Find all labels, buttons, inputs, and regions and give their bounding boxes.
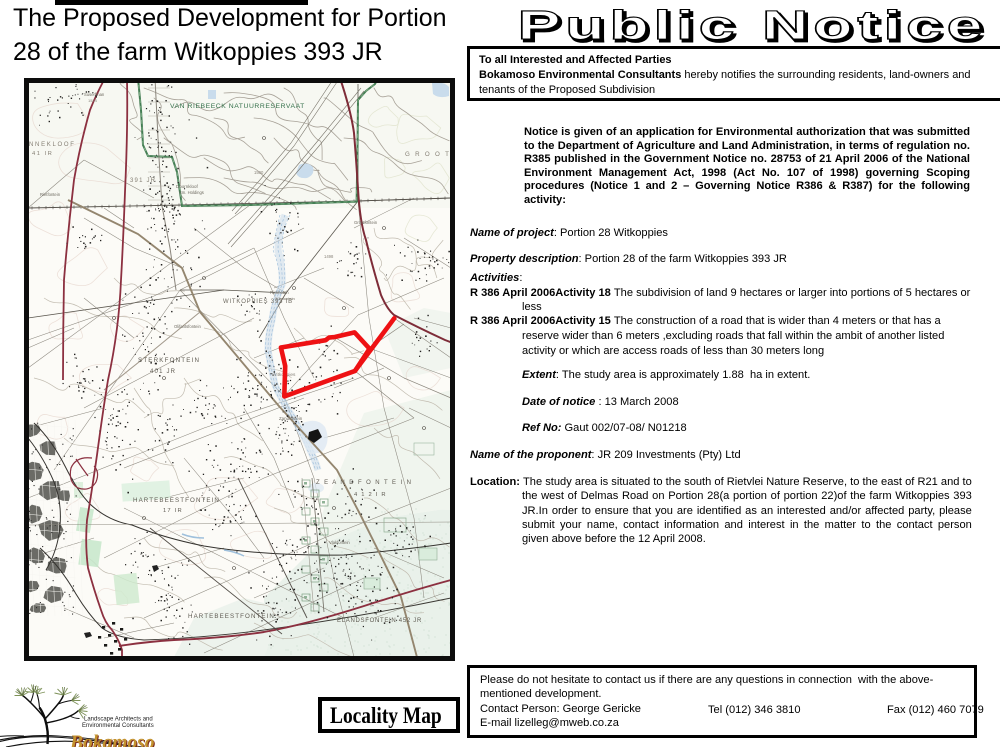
- svg-text:NNEKLOOF: NNEKLOOF: [29, 142, 76, 148]
- svg-text:4 1 2 I R: 4 1 2 I R: [354, 492, 387, 498]
- svg-text:Grootfontein: Grootfontein: [354, 220, 378, 225]
- svg-text:STERKFONTEIN: STERKFONTEIN: [138, 357, 200, 364]
- svg-text:401 JR: 401 JR: [150, 369, 176, 375]
- svg-text:391 JR: 391 JR: [130, 178, 156, 184]
- svg-text:ELANDSFONTEIN 452 JR: ELANDSFONTEIN 452 JR: [337, 618, 422, 624]
- svg-text:Z E A N D F O N T E I N: Z E A N D F O N T E I N: [316, 480, 412, 486]
- svg-text:1534: 1534: [88, 98, 98, 103]
- svg-text:1498: 1498: [324, 254, 334, 259]
- svg-text:HARTEBEESTFONTEIN: HARTEBEESTFONTEIN: [188, 613, 275, 620]
- svg-text:Suserfman: Suserfman: [84, 92, 105, 97]
- svg-text:VAN RIEBEECK NATUURRESERVAAT: VAN RIEBEECK NATUURRESERVAAT: [170, 103, 305, 110]
- svg-text:Doornkloof: Doornkloof: [176, 184, 199, 189]
- svg-text:Zandfontein: Zandfontein: [279, 416, 303, 421]
- svg-text:Bokamoso: Bokamoso: [69, 733, 155, 747]
- svg-text:Rickhersh: Rickhersh: [270, 290, 289, 295]
- svg-text:Landscape Architects and: Landscape Architects and: [84, 717, 153, 723]
- svg-text:HARTEBEESTFONTEIN: HARTEBEESTFONTEIN: [133, 497, 220, 504]
- svg-text:Vlakfontein: Vlakfontein: [329, 540, 350, 545]
- svg-text:17 IR: 17 IR: [163, 508, 183, 514]
- svg-text:Environmental Consultants: Environmental Consultants: [82, 723, 154, 729]
- svg-text:Klipfontein: Klipfontein: [276, 296, 295, 301]
- svg-text:41 IR: 41 IR: [32, 151, 53, 157]
- svg-text:Public Notice: Public Notice: [518, 3, 988, 49]
- svg-text:G R O O T F: G R O O T F: [405, 151, 455, 158]
- svg-text:1500: 1500: [254, 170, 264, 175]
- svg-text:Olifantsfontein: Olifantsfontein: [174, 324, 201, 329]
- svg-text:Sm. Holdings: Sm. Holdings: [179, 190, 204, 195]
- svg-text:Rietfontein: Rietfontein: [40, 192, 61, 197]
